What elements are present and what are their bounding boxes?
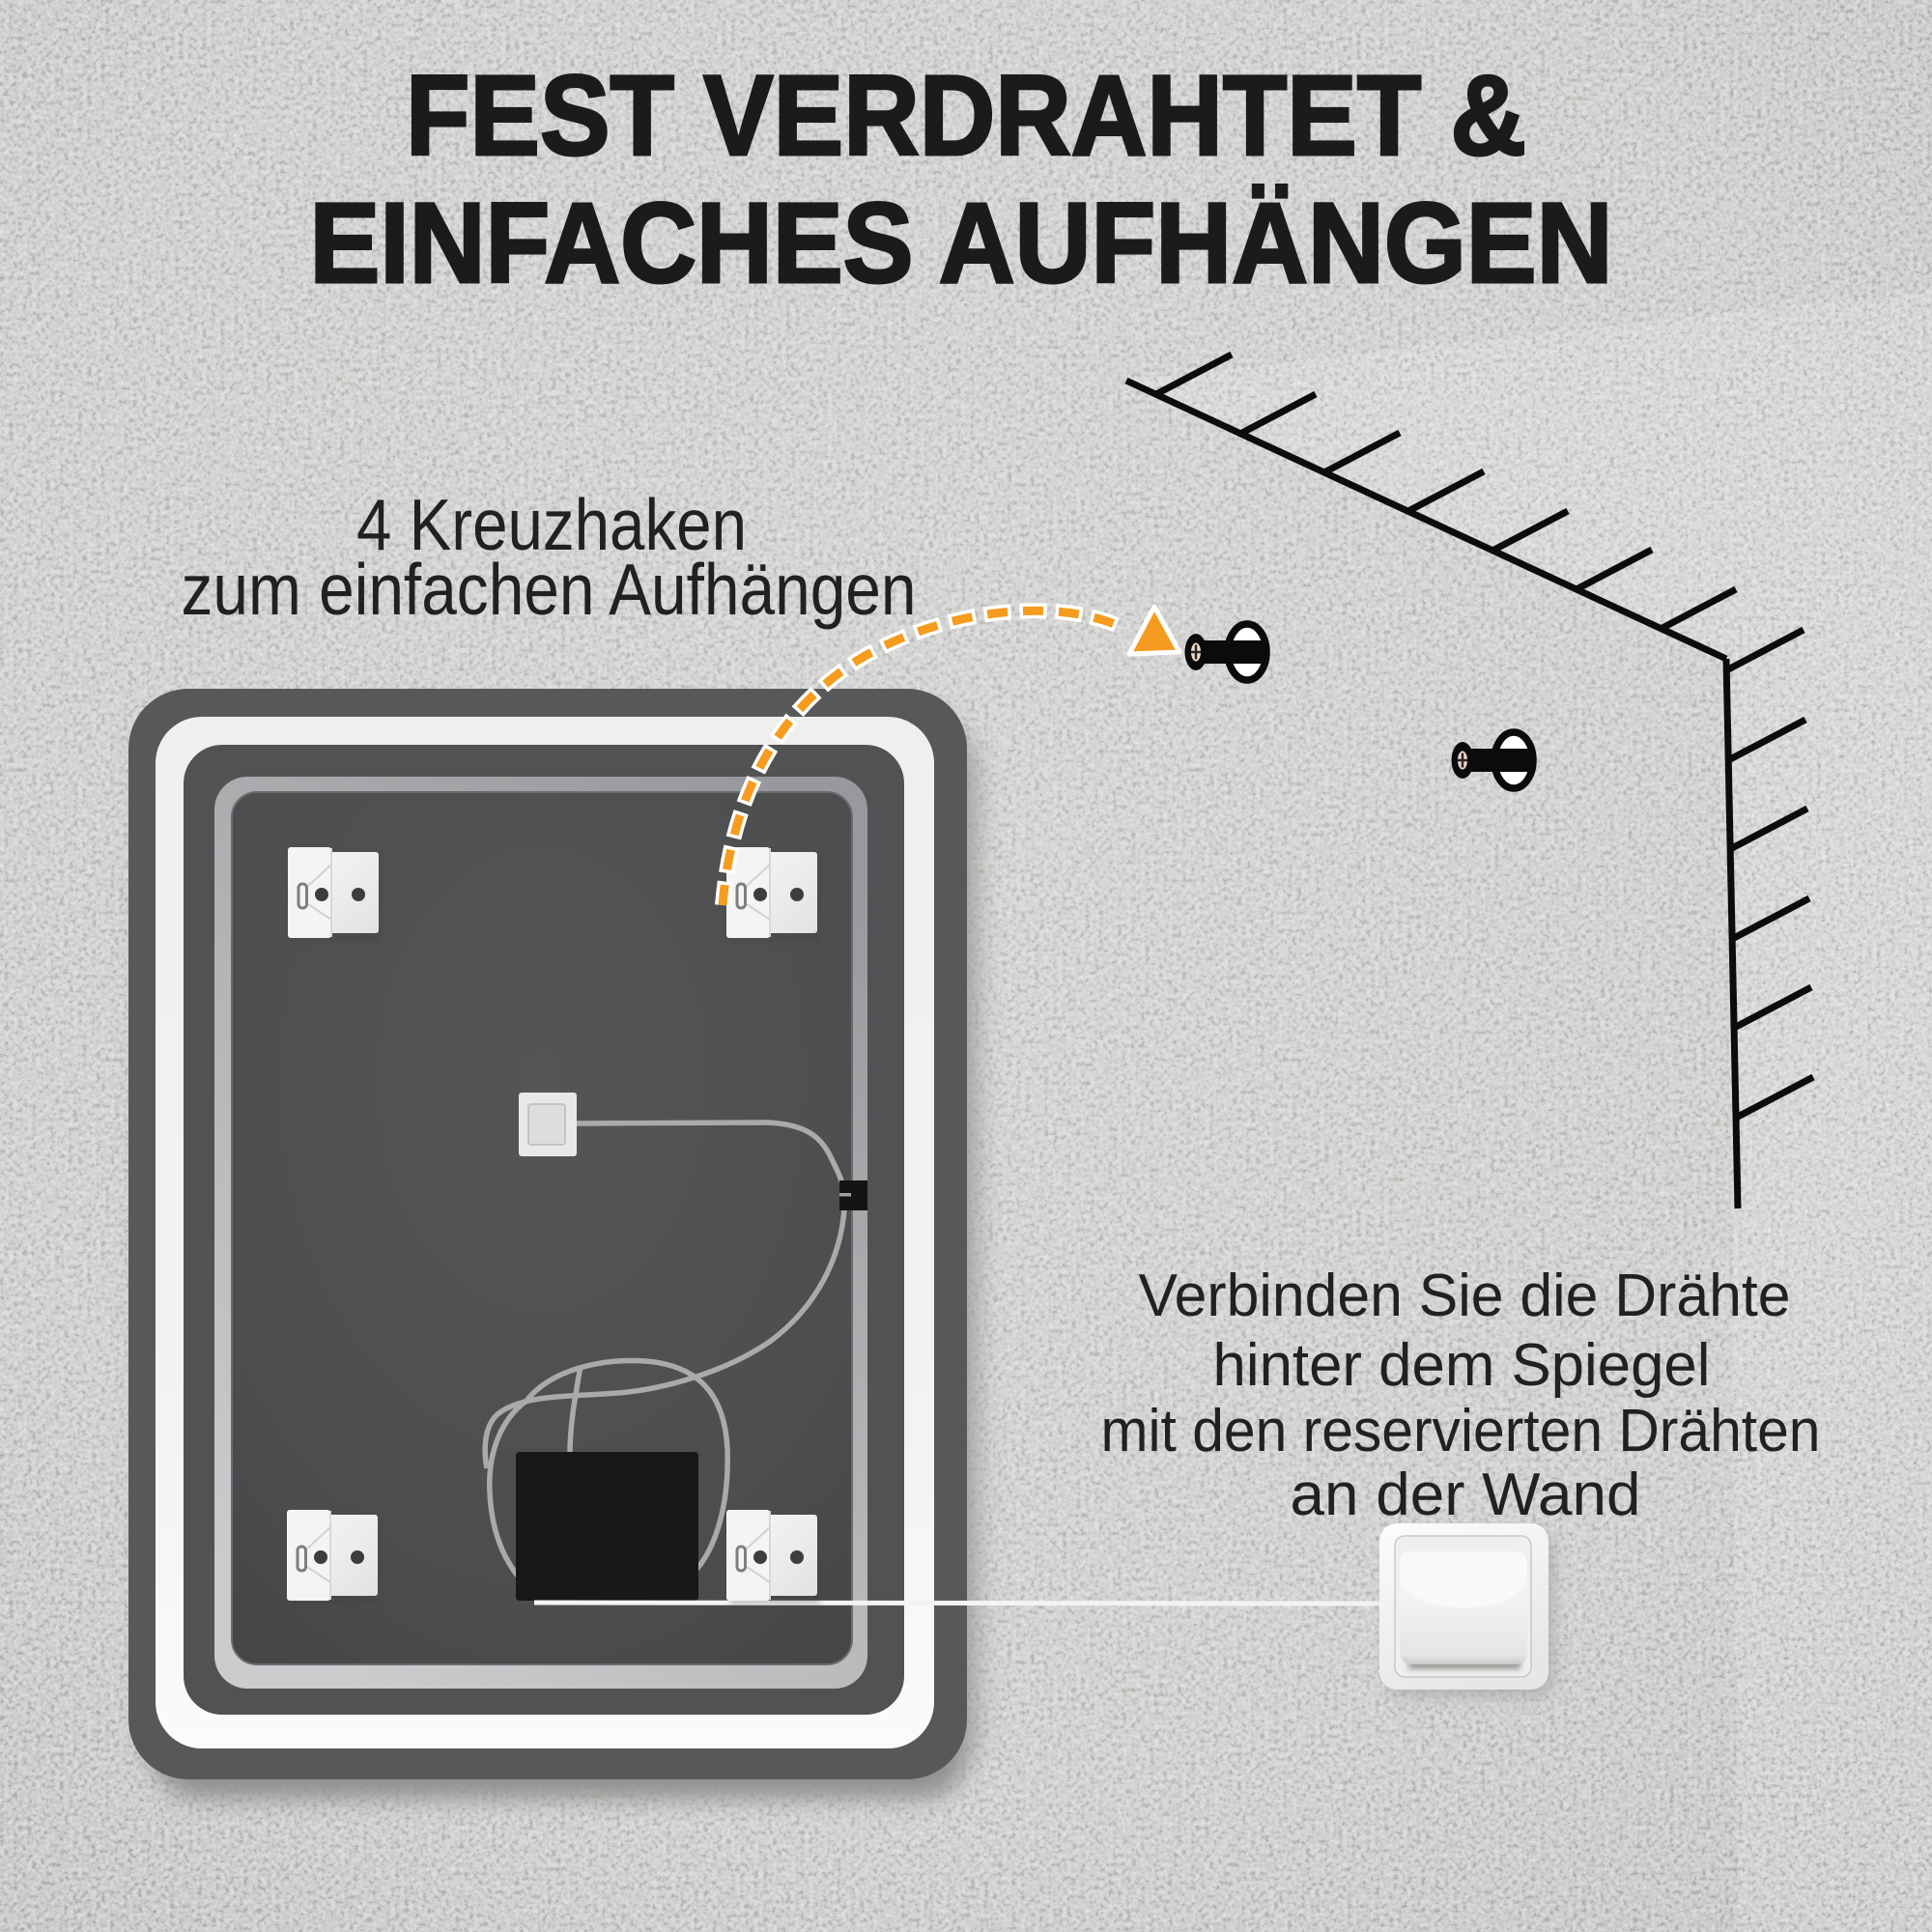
svg-text:an der Wand: an der Wand: [1291, 1462, 1641, 1528]
svg-text:zum einfachen Aufhängen: zum einfachen Aufhängen: [182, 549, 917, 630]
svg-text:Verbinden Sie die Drähte: Verbinden Sie die Drähte: [1139, 1263, 1791, 1329]
svg-text:hinter dem Spiegel: hinter dem Spiegel: [1213, 1332, 1711, 1399]
svg-text:EINFACHES AUFHÄNGEN: EINFACHES AUFHÄNGEN: [310, 180, 1613, 307]
svg-text:FEST VERDRAHTET &: FEST VERDRAHTET &: [406, 52, 1526, 180]
svg-text:mit den reservierten Drähten: mit den reservierten Drähten: [1101, 1398, 1821, 1464]
